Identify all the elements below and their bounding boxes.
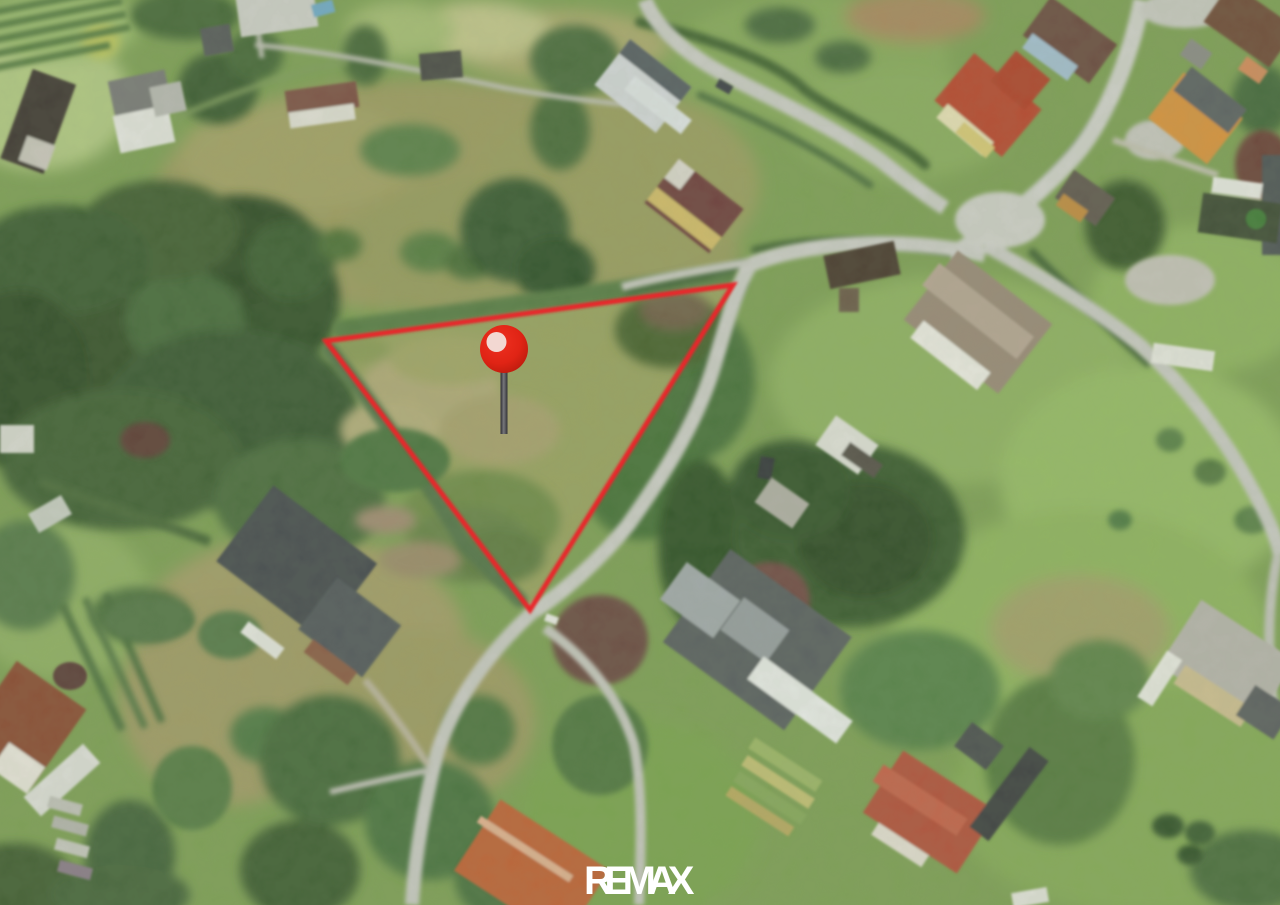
svg-text:REMAX: REMAX xyxy=(584,859,695,903)
